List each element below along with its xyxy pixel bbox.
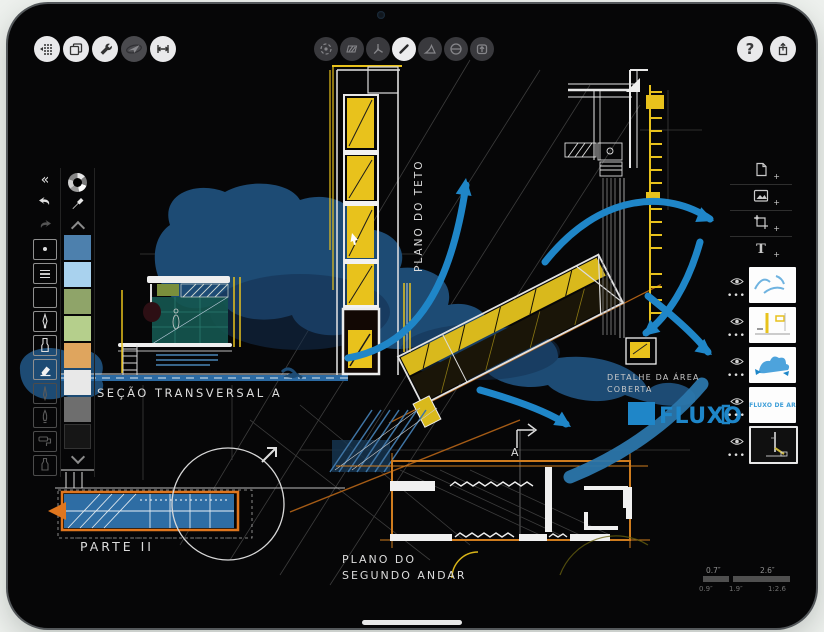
layer-thumbnail-text[interactable]: FLUXO DE AR	[749, 387, 796, 423]
selection-loop-button[interactable]	[314, 37, 338, 61]
undo-arrow-icon	[37, 193, 53, 212]
eye-icon[interactable]	[730, 311, 744, 330]
add-image-button[interactable]: +	[724, 186, 798, 209]
share-icon	[775, 41, 791, 57]
home-indicator[interactable]	[362, 620, 462, 625]
color-swatch-2[interactable]	[64, 262, 91, 287]
circle-slash-icon	[448, 41, 464, 57]
layer-options-button[interactable]: •••	[727, 453, 746, 459]
front-camera	[377, 11, 385, 19]
layer-thumbnail-selected[interactable]	[749, 426, 798, 464]
hatch-fill-button[interactable]	[340, 37, 364, 61]
hatch-fill-icon	[344, 41, 360, 57]
send-button[interactable]	[121, 36, 147, 62]
label-plan-marker: A	[511, 446, 520, 459]
share-button[interactable]	[770, 36, 796, 62]
layer-row-4: ••• FLUXO DE AR	[724, 385, 798, 425]
eyedropper-button[interactable]	[70, 194, 86, 216]
chevron-up-icon	[70, 221, 84, 235]
color-wheel-icon	[68, 173, 87, 192]
undo-button[interactable]	[37, 191, 53, 214]
add-text-button[interactable]: T +	[724, 238, 798, 261]
svg-text:0.9″: 0.9″	[699, 585, 713, 593]
collapse-panel-button[interactable]: «	[41, 168, 50, 191]
help-icon: ?	[746, 40, 755, 58]
label-ceiling-plan: PLANO DO TETO	[413, 160, 425, 272]
eye-icon[interactable]	[730, 431, 744, 450]
layer-text-label: FLUXO DE AR	[749, 387, 796, 423]
plus-badge: +	[773, 172, 780, 181]
svg-text:1:2.6: 1:2.6	[768, 585, 786, 593]
label-floor-plan-1: PLANO DO	[342, 553, 416, 566]
line-tool-icon	[396, 41, 412, 57]
export-box-icon	[474, 41, 490, 57]
circle-slash-button[interactable]	[444, 37, 468, 61]
export-box-button[interactable]	[470, 37, 494, 61]
triangle-tool-icon	[422, 41, 438, 57]
svg-text:2.6″: 2.6″	[760, 566, 775, 575]
redo-arrow-icon	[37, 216, 53, 235]
triangle-tool-button[interactable]	[418, 37, 442, 61]
color-wheel-button[interactable]	[68, 170, 87, 194]
layer-options-button[interactable]: •••	[727, 333, 746, 339]
tool-airbrush[interactable]	[33, 311, 57, 332]
plus-badge: +	[773, 250, 780, 259]
layer-row-3: •••	[724, 345, 798, 385]
label-parte: PARTE II	[80, 539, 154, 554]
layers-panel: + + + T + •••	[724, 160, 798, 465]
screenshot-stage: SEÇÃO TRANSVERSAL A PLANO DO TETO DETALH…	[0, 0, 824, 632]
layer-options-button[interactable]: •••	[727, 413, 746, 419]
tool-line-weights[interactable]	[33, 263, 57, 284]
grid-precision-button[interactable]	[34, 36, 60, 62]
color-swatch-4[interactable]	[64, 316, 91, 341]
eye-icon[interactable]	[730, 351, 744, 370]
tool-eraser[interactable]	[33, 359, 57, 380]
pages-button[interactable]	[63, 36, 89, 62]
eye-icon[interactable]	[730, 391, 744, 410]
svg-text:0.7″: 0.7″	[706, 566, 721, 575]
color-swatch-5[interactable]	[64, 343, 91, 368]
eye-icon[interactable]	[730, 271, 744, 290]
label-floor-plan-2: SEGUNDO ANDAR	[342, 569, 467, 582]
new-page-icon	[752, 161, 770, 183]
palette-collapse-up[interactable]	[73, 216, 83, 234]
tool-roller[interactable]	[33, 431, 57, 452]
layer-thumbnail[interactable]	[749, 307, 796, 343]
label-detail-1: DETALHE DA ÁREA	[607, 371, 700, 382]
layer-options-button[interactable]: •••	[727, 293, 746, 299]
layer-thumbnail[interactable]	[749, 267, 796, 303]
tool-empty-slot[interactable]	[33, 287, 57, 308]
crop-icon	[752, 213, 770, 235]
plus-badge: +	[773, 198, 780, 207]
add-image-icon	[752, 188, 770, 208]
line-tool-button[interactable]	[392, 37, 416, 61]
plus-badge: +	[773, 224, 780, 233]
redo-button[interactable]	[37, 214, 53, 237]
pages-icon	[68, 41, 84, 57]
add-text-icon: T	[756, 242, 766, 257]
layer-row-5: •••	[724, 425, 798, 465]
drawing-canvas[interactable]: SEÇÃO TRANSVERSAL A PLANO DO TETO DETALH…	[8, 4, 816, 628]
chevron-down-icon	[70, 450, 84, 464]
tool-panel: «	[30, 168, 95, 477]
tool-brush[interactable]	[33, 407, 57, 428]
color-swatch-1[interactable]	[64, 235, 91, 260]
svg-text:1.9″: 1.9″	[729, 585, 743, 593]
scale-ruler: 0.7″ 2.6″ 0.9″ 1.9″ 1:2.6	[699, 566, 790, 593]
new-page-button[interactable]: +	[724, 160, 798, 183]
settings-button[interactable]	[92, 36, 118, 62]
paper-plane-icon	[125, 40, 143, 58]
tool-marker[interactable]	[33, 335, 57, 356]
color-swatch-3[interactable]	[64, 289, 91, 314]
color-swatch-8[interactable]	[64, 424, 91, 449]
ipad-device: SEÇÃO TRANSVERSAL A PLANO DO TETO DETALH…	[8, 4, 816, 628]
crop-button[interactable]: +	[724, 212, 798, 235]
tool-dot-tip[interactable]	[33, 239, 57, 260]
eyedropper-icon	[70, 195, 86, 215]
color-swatch-6[interactable]	[64, 370, 91, 395]
layer-thumbnail[interactable]	[749, 347, 796, 383]
label-detail-2: COBERTA	[607, 385, 653, 394]
tool-ink-bottle[interactable]	[33, 455, 57, 476]
layer-row-2: •••	[724, 305, 798, 345]
label-section: SEÇÃO TRANSVERSAL A	[97, 385, 282, 400]
compass-icon	[370, 41, 386, 57]
help-button[interactable]: ?	[737, 36, 763, 62]
compass-button[interactable]	[366, 37, 390, 61]
layer-row-1: •••	[724, 265, 798, 305]
color-swatch-7[interactable]	[64, 397, 91, 422]
measure-button[interactable]	[150, 36, 176, 62]
palette-collapse-down[interactable]	[73, 450, 83, 468]
selection-loop-icon	[318, 41, 334, 57]
measure-icon	[155, 41, 171, 57]
wrench-icon	[97, 41, 113, 57]
layer-options-button[interactable]: •••	[727, 373, 746, 379]
tool-pencil[interactable]	[33, 383, 57, 404]
grid-precision-icon	[39, 41, 55, 57]
